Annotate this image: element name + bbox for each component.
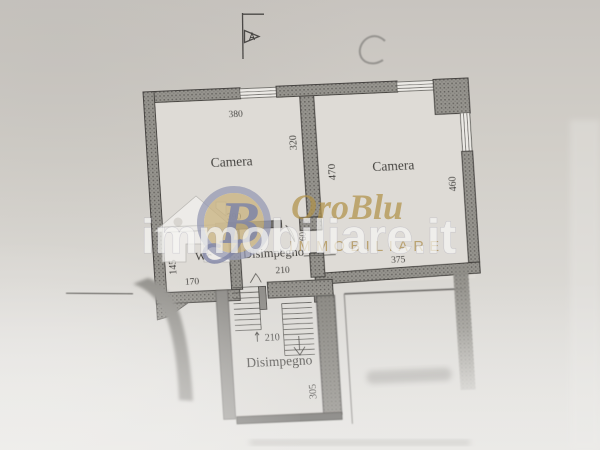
- svg-text:320: 320: [288, 135, 300, 150]
- svg-text:immobiliare.it: immobiliare.it: [141, 210, 456, 264]
- svg-text:460: 460: [447, 176, 459, 191]
- svg-text:Camera: Camera: [210, 153, 253, 170]
- svg-text:Camera: Camera: [372, 158, 415, 175]
- svg-text:470: 470: [326, 163, 339, 180]
- svg-text:380: 380: [228, 110, 243, 121]
